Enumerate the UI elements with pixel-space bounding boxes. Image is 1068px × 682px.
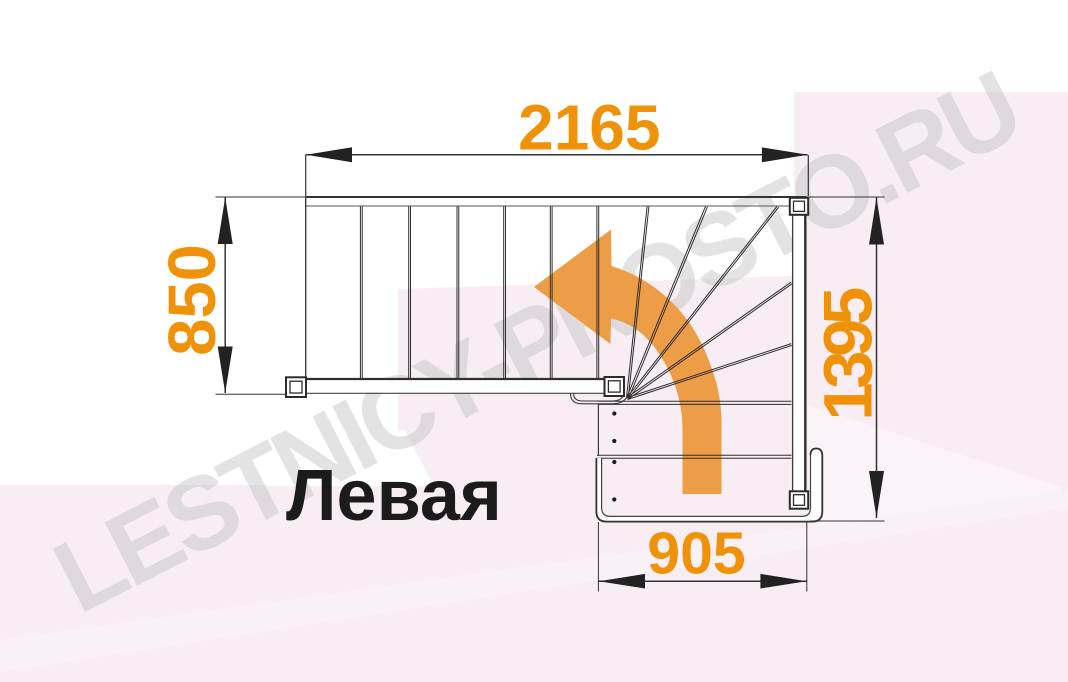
svg-text:2165: 2165 [518,92,660,164]
svg-text:850: 850 [155,244,230,356]
svg-text:905: 905 [647,521,745,587]
svg-text:Левая: Левая [286,456,502,536]
svg-text:1395: 1395 [810,288,887,421]
